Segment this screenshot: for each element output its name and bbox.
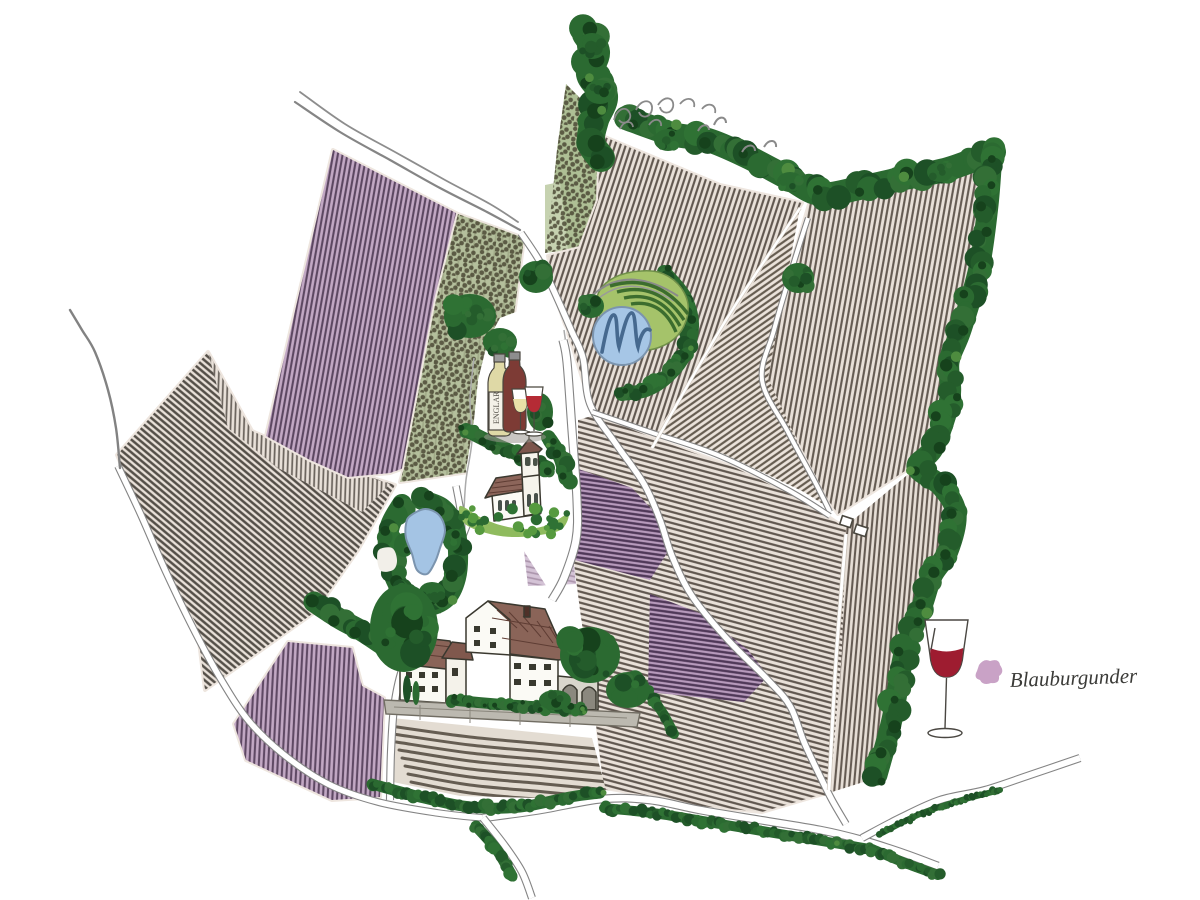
svg-text:ENGLAR: ENGLAR xyxy=(492,391,501,424)
svg-text:Blauburgunder: Blauburgunder xyxy=(1009,664,1138,692)
